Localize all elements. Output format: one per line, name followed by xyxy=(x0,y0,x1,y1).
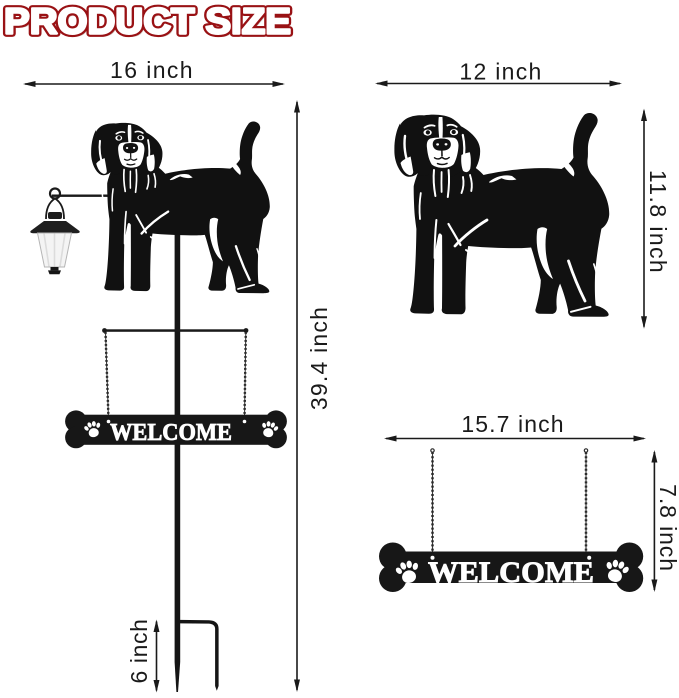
svg-text:16 inch: 16 inch xyxy=(110,57,194,83)
svg-text:PRODUCT SIZE: PRODUCT SIZE xyxy=(4,1,291,42)
svg-text:6 inch: 6 inch xyxy=(126,619,152,684)
svg-text:15.7 inch: 15.7 inch xyxy=(461,411,564,437)
svg-text:39.4 inch: 39.4 inch xyxy=(306,306,332,410)
svg-text:12 inch: 12 inch xyxy=(459,59,542,85)
svg-text:11.8 inch: 11.8 inch xyxy=(645,170,671,274)
svg-text:WELCOME: WELCOME xyxy=(428,556,594,589)
svg-text:WELCOME: WELCOME xyxy=(110,420,232,446)
svg-text:7.8 inch: 7.8 inch xyxy=(655,484,679,572)
